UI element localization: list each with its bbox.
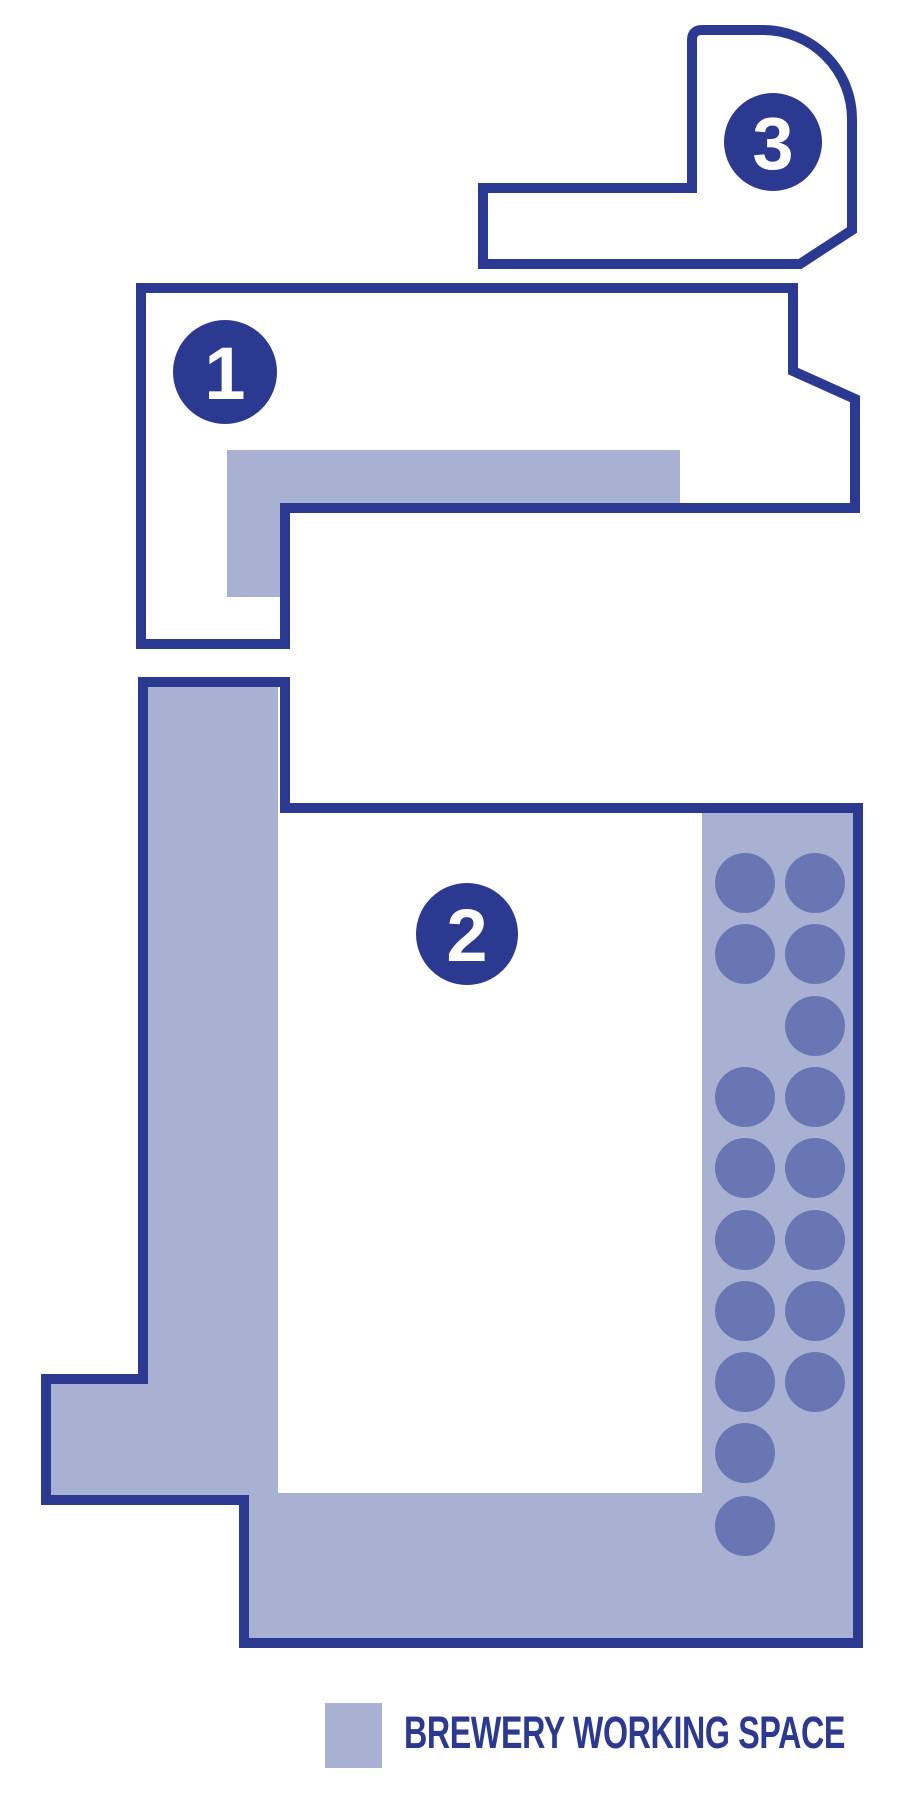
legend-swatch — [325, 1703, 382, 1768]
tank-circle — [785, 1281, 845, 1341]
working-space-room2-left-column — [148, 687, 278, 1496]
tank-circle — [785, 1067, 845, 1127]
area-3-badge: 3 — [724, 93, 822, 191]
tank-circle — [715, 1496, 775, 1556]
tank-circle — [715, 924, 775, 984]
area-3-badge-label: 3 — [752, 102, 793, 185]
working-space-room2-tab — [51, 1384, 250, 1496]
tank-circle — [785, 853, 845, 913]
area-1-badge: 1 — [173, 320, 277, 424]
area-2-badge-label: 2 — [446, 894, 487, 977]
area-1-badge-label: 1 — [204, 332, 245, 415]
tank-circle — [785, 924, 845, 984]
tank-circle — [715, 1281, 775, 1341]
legend-label: BREWERY WORKING SPACE — [404, 1707, 845, 1758]
tank-circle — [785, 996, 845, 1056]
tank-circle — [785, 1352, 845, 1412]
floor-plan: 1 2 3 BREWERY WORKING SPACE — [0, 0, 897, 1806]
tank-circle — [715, 1352, 775, 1412]
tank-circle — [785, 1210, 845, 1270]
working-space-room1-band — [227, 450, 680, 504]
tank-circle — [715, 1423, 775, 1483]
tank-circle — [715, 1067, 775, 1127]
tank-circle — [785, 1138, 845, 1198]
working-space-room1-strip — [227, 450, 280, 597]
tank-circle — [715, 1210, 775, 1270]
tank-circle — [715, 1138, 775, 1198]
tank-circle — [715, 853, 775, 913]
area-2-badge: 2 — [416, 883, 518, 985]
